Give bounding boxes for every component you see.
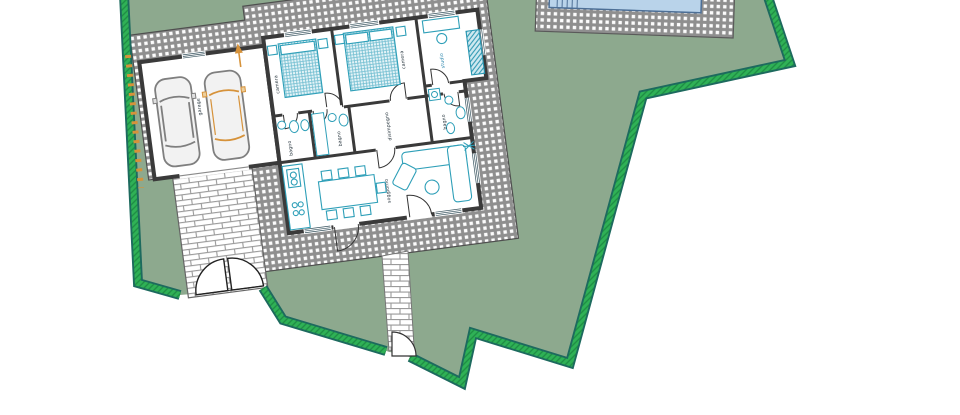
site-plan-page: garage	[0, 0, 960, 415]
garage-room: garage	[139, 43, 280, 182]
floor-plan-canvas: garage	[0, 0, 960, 415]
swimming-pool	[535, 0, 736, 38]
